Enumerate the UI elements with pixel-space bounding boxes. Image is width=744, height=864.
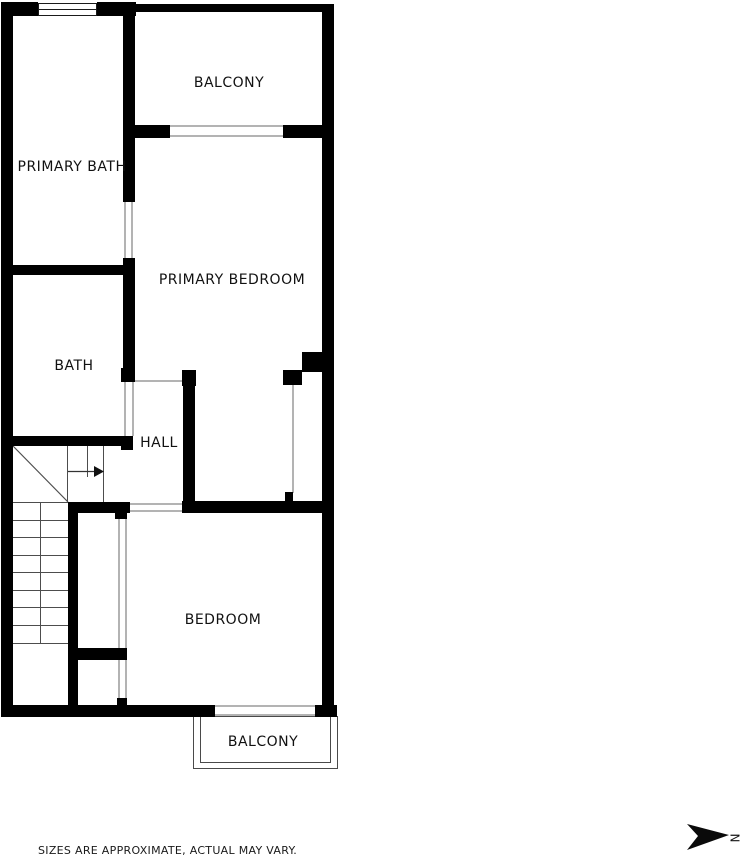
window-icon [38, 3, 97, 16]
room-label-bath: BATH [54, 358, 93, 374]
wall-segment [315, 705, 337, 717]
disclaimer-text: SIZES ARE APPROXIMATE, ACTUAL MAY VARY. [38, 844, 297, 857]
wall-segment [123, 275, 135, 373]
room-label-balcony-bottom: BALCONY [228, 734, 298, 750]
floor-plan: BALCONY PRIMARY BATH PRIMARY BEDROOM BAT… [0, 0, 744, 864]
stair-arrow-head-icon [94, 466, 104, 477]
north-compass: N [686, 819, 744, 859]
room-label-primary-bedroom: PRIMARY BEDROOM [159, 272, 305, 288]
room-label-balcony-top: BALCONY [194, 75, 264, 91]
north-letter: N [727, 834, 741, 843]
wall-segment [283, 370, 302, 385]
wall-segment [182, 501, 334, 513]
wall-segment [70, 648, 127, 660]
stairs-overlay [0, 0, 744, 864]
wall-segment [121, 436, 133, 450]
window-mullion [39, 9, 96, 10]
stair-diagonal-line [13, 446, 68, 502]
wall-segment [285, 492, 293, 501]
wall-segment [302, 352, 334, 372]
wall-segment [183, 386, 195, 503]
wall-segment [135, 4, 330, 12]
wall-segment [182, 370, 196, 386]
wall-segment [121, 368, 135, 382]
wall-segment [115, 513, 127, 519]
wall-segment [1, 2, 13, 717]
wall-segment [1, 265, 135, 275]
wall-segment [68, 502, 78, 712]
wall-segment [117, 698, 127, 708]
wall-segment [283, 125, 323, 138]
room-label-hall: HALL [140, 435, 178, 451]
wall-segment [1, 705, 215, 717]
wall-segment [123, 125, 170, 138]
north-arrow-icon [686, 819, 730, 855]
room-label-primary-bath: PRIMARY BATH [18, 159, 127, 175]
room-label-bedroom: BEDROOM [185, 612, 262, 628]
wall-segment [1, 436, 133, 446]
